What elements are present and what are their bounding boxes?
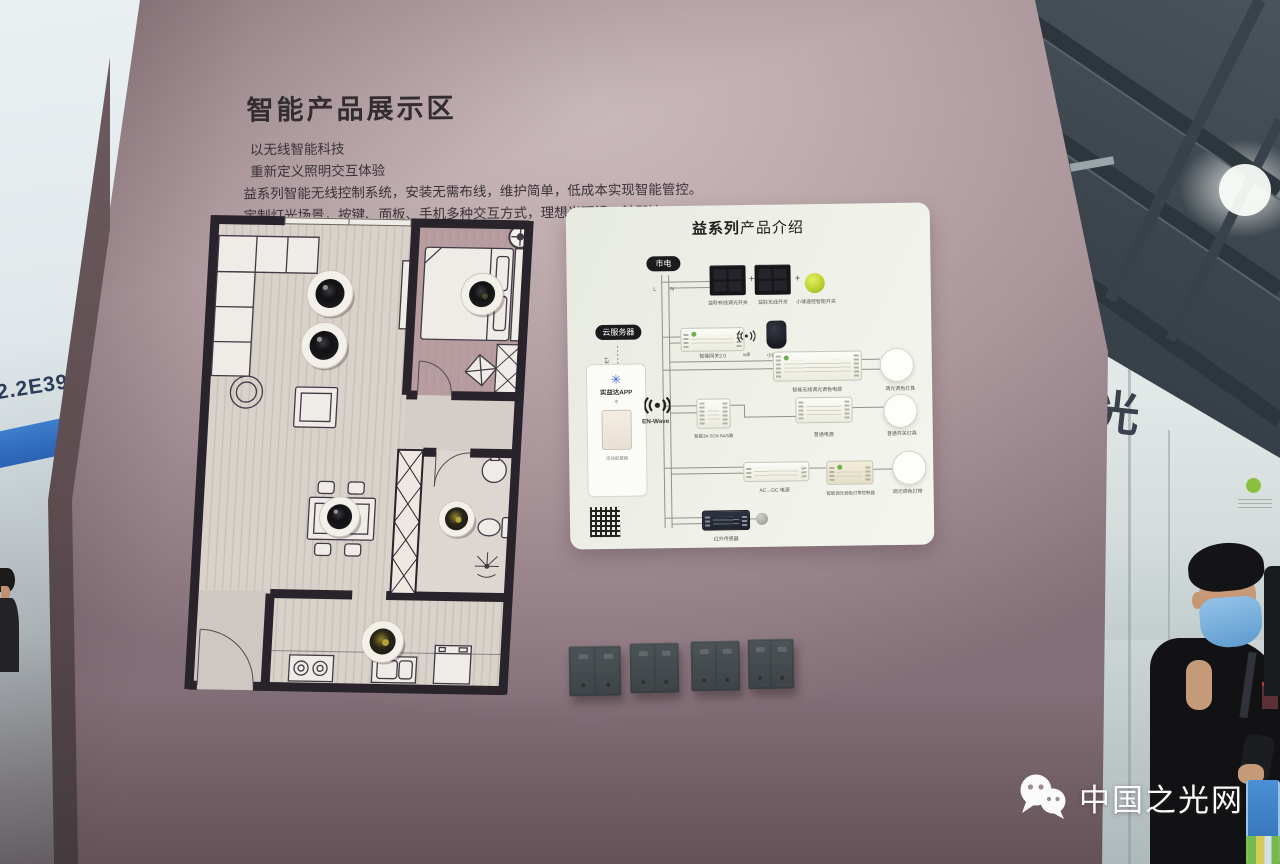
smart-speaker [766,320,786,348]
wire-label-n: N [670,287,674,293]
switch-label: 小球遥控智能开关 [788,298,844,306]
bag-print [1246,836,1280,864]
switch-rocker [716,643,738,689]
wall-switch-panel [748,639,795,690]
bluetooth-icon: ✲ [596,399,637,405]
distant-booth-text [1238,498,1272,508]
switch-buttons [714,269,742,291]
plain-driver [795,397,852,424]
dim-driver-label: 智能无线调光调色电源 [789,386,845,394]
tagline-line: 以无线智能科技 [250,136,723,159]
strip-lamp-label: 调光调色灯带 [880,488,935,496]
wifi-signal-icon [737,329,755,343]
floor-plan [172,209,539,701]
exhibition-photo: 光 2.2E39 智能产品展示区 以无线智能科技 重新定义照明交互体验 益系列智… [0,0,1280,864]
ir-sensor-module [702,510,750,531]
wireless-dimming-driver [773,350,862,381]
chair [318,481,335,493]
relay-module [696,398,730,428]
page-title: 智能产品展示区 [246,83,722,127]
acdc-power [743,461,809,482]
chair [344,544,361,556]
wire-label-l: L [653,287,656,293]
wall-switch-panel [691,641,741,692]
wall-switch-panel [630,643,680,694]
relay-module-label: 智能3A SCN 8A/5路 [689,433,739,440]
switch-rocker [693,643,715,689]
ir-sensor-label: 红外传感器 [698,535,754,543]
basin [482,458,507,482]
switch-rocker [596,648,620,694]
switch-buttons [759,268,787,290]
toilet [478,519,501,536]
switch-rocker [655,645,677,691]
app-name: 实益达APP [593,388,640,397]
switch-rocker [632,645,654,691]
switch-rocker [750,641,771,687]
mains-badge: 市电 [646,256,680,271]
switch-rocker [571,648,595,694]
qr-code [590,507,620,537]
hall-floor [404,395,519,452]
acdc-label: AC→DC 电源 [747,486,803,494]
chair [348,482,365,494]
left-person-body [0,598,19,672]
phone-image [601,410,632,450]
enwave-signal-icon [644,396,670,414]
enwave-label: EN-Wave [642,418,669,425]
plain-driver-label: 普通电源 [796,431,852,439]
booth-divider [1168,430,1170,640]
watermark: 中国之光网 [1016,772,1244,822]
distant-booth-logo [1246,478,1261,493]
app-logo-icon: ✳ [587,372,645,387]
wired-dimmer-switch [709,265,745,295]
ball-remote-switch [805,273,825,293]
chair [314,543,331,555]
tagline-line: 重新定义照明交互体验 [250,158,723,181]
visitor-arm [1186,660,1212,710]
plain-lamp-label: 普通开关灯具 [874,430,930,438]
cloud-badge: 云服务器 [595,325,641,341]
strip-controller [826,460,873,485]
wechat-icon [1016,772,1070,822]
switch-rocker [772,641,793,687]
watermark-text: 中国之光网 [1079,775,1244,820]
app-card: ✳ 实益达APP ✲ 无线配置器 [586,363,648,497]
strip-controller-label: 智能调光调色灯带控制器 [826,490,876,497]
product-intro-panel: 益系列产品介绍 市电 L N + + 益聆有线调光开关 益聆无线开关 小球遥控智… [566,202,935,549]
app-caption: 无线配置器 [601,455,633,461]
dim-lamp-label: 调光调色灯具 [872,385,928,393]
wall-switch-panel [569,646,622,697]
gateway-module [680,327,744,352]
ir-sensor-head [756,513,768,525]
plus-sign: + [795,273,801,284]
wireless-switch [754,264,790,294]
sofa [217,236,319,274]
second-person [1264,566,1280,696]
tagline-line: 益系列智能无线控制系统，安装无需布线，维护简单，低成本实现智能管控。 [243,180,723,203]
